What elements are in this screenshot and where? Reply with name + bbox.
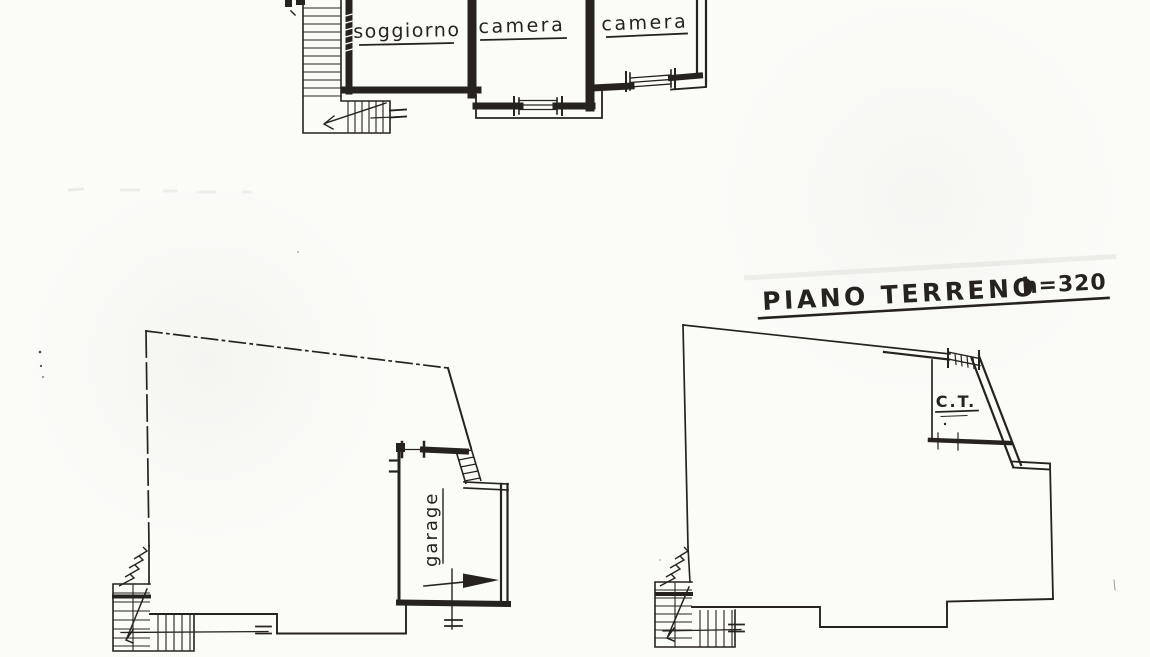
room-label-camera-1: camera [478,14,565,38]
ground-floor-outline [683,325,1053,627]
door-threshold-marks [445,569,462,629]
plan-title-height: h=320 [1021,270,1107,299]
floorplan-drawing: soggiorno camera camera PIANO TERRENO h=… [0,0,1150,657]
direction-arrow-icon [424,574,499,589]
ground-floor-staircase [655,582,744,647]
upper-floor-plan: soggiorno camera camera [285,0,706,133]
room-label-camera-2: camera [601,10,688,35]
basement-plan: garage [113,331,508,651]
scanned-floorplan-page: soggiorno camera camera PIANO TERRENO h=… [0,0,1150,657]
basement-staircase [113,584,271,651]
room-label-soggiorno: soggiorno [353,19,461,43]
label-underline [481,38,566,40]
label-underline [941,416,967,417]
scan-noise [39,189,1115,590]
slope-marks [660,547,688,586]
room-label-boiler: C.T. [936,392,976,411]
slope-marks [119,547,147,586]
ground-floor-plan: C.T. [655,325,1053,647]
room-label-garage: garage [421,492,442,567]
title-block: PIANO TERRENO h=320 [744,256,1119,318]
garage-room: garage [390,442,508,629]
basement-outline [146,331,471,634]
scan-cutoff-marks [285,0,305,15]
label-underline [360,43,453,45]
